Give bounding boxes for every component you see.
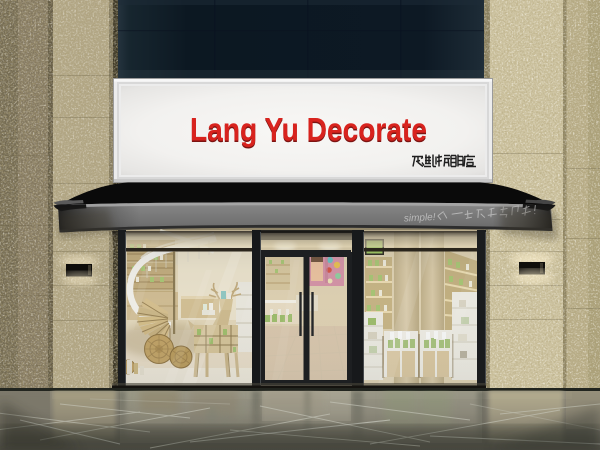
svg-text:Lang Yu Decorate: Lang Yu Decorate	[190, 112, 427, 148]
svg-text:simple!: simple!	[404, 212, 436, 225]
